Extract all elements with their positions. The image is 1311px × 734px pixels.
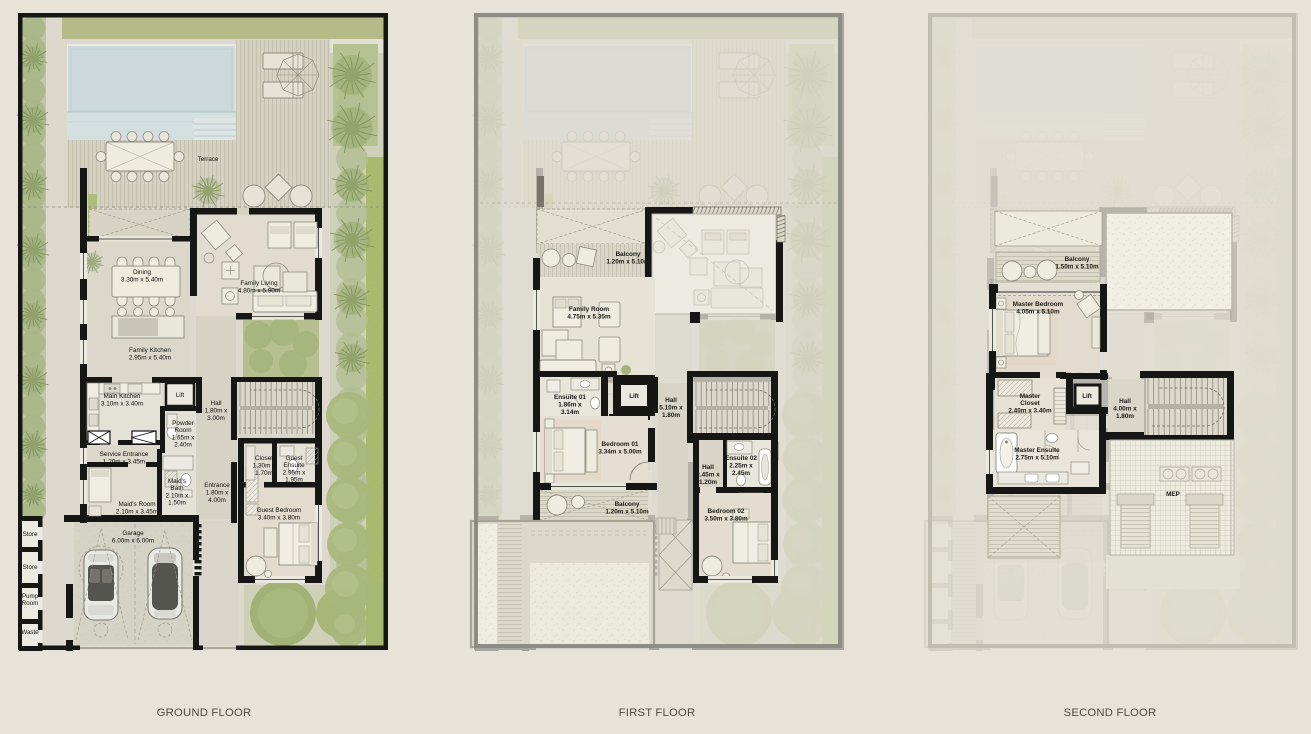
svg-text:Family Living4.80m x 5.90m: Family Living4.80m x 5.90m bbox=[238, 280, 280, 295]
svg-text:Store: Store bbox=[23, 531, 38, 538]
svg-text:Waste: Waste bbox=[21, 629, 39, 636]
svg-text:MEP: MEP bbox=[1166, 491, 1181, 498]
svg-text:Main Kitchen3.10m x 3.40m: Main Kitchen3.10m x 3.40m bbox=[101, 393, 143, 408]
svg-text:GROUND FLOOR: GROUND FLOOR bbox=[157, 707, 252, 719]
svg-text:PumpRoom: PumpRoom bbox=[22, 593, 39, 607]
svg-text:Bedroom 023.50m x 3.80m: Bedroom 023.50m x 3.80m bbox=[704, 508, 748, 523]
svg-text:Lift: Lift bbox=[176, 392, 185, 399]
svg-text:Family Room4.75m x 5.35m: Family Room4.75m x 5.35m bbox=[567, 306, 611, 321]
svg-text:Family Kitchen2.95m x 5.40m: Family Kitchen2.95m x 5.40m bbox=[129, 347, 172, 362]
svg-text:Lift: Lift bbox=[1082, 393, 1092, 400]
svg-text:Maid's Room2.10m x 3.45m: Maid's Room2.10m x 3.45m bbox=[116, 501, 158, 516]
svg-text:Closet1.30m x1.70m: Closet1.30m x1.70m bbox=[253, 455, 277, 477]
svg-text:Guest Bedroom3.40m x 3.80m: Guest Bedroom3.40m x 3.80m bbox=[257, 507, 302, 522]
svg-text:Master Ensuite2.75m x 5.10m: Master Ensuite2.75m x 5.10m bbox=[1014, 447, 1060, 462]
svg-text:Terrace: Terrace bbox=[198, 156, 219, 163]
svg-text:Lift: Lift bbox=[629, 393, 639, 400]
svg-text:Master Bedroom4.05m x 5.10m: Master Bedroom4.05m x 5.10m bbox=[1013, 301, 1064, 316]
svg-text:Service Entrance1.20m x 3.45m: Service Entrance1.20m x 3.45m bbox=[100, 451, 149, 466]
svg-text:SECOND FLOOR: SECOND FLOOR bbox=[1064, 707, 1157, 719]
svg-text:PowderRoom1.65m x2.40m: PowderRoom1.65m x2.40m bbox=[172, 420, 196, 449]
svg-text:Bedroom 013.34m x 5.00m: Bedroom 013.34m x 5.00m bbox=[598, 441, 642, 456]
svg-text:Store: Store bbox=[23, 564, 38, 571]
svg-text:FIRST FLOOR: FIRST FLOOR bbox=[619, 707, 696, 719]
svg-text:Maid'sBath2.10m x1.50m: Maid'sBath2.10m x1.50m bbox=[166, 478, 190, 507]
